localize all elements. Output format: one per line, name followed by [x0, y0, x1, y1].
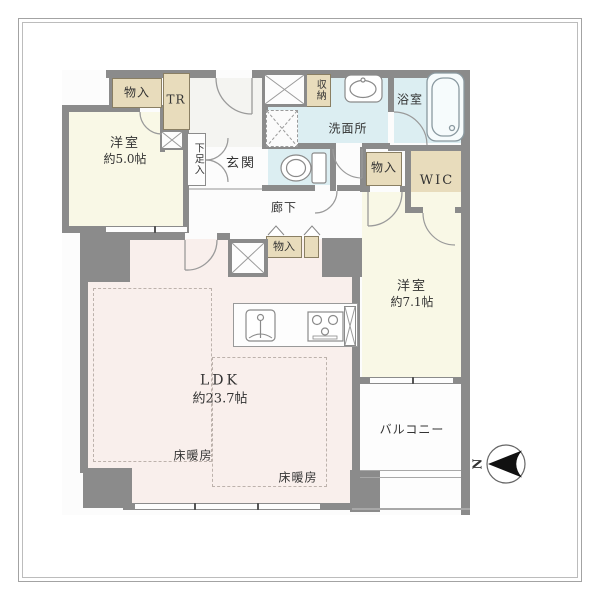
front-door-arc	[216, 78, 252, 114]
room-size: 約23.7帖	[193, 391, 248, 406]
closet-door-arc	[140, 112, 162, 134]
window-mullion-ticks	[155, 226, 413, 510]
label-floor-heating-1: 床暖房	[173, 449, 212, 464]
closet-chevron-marks	[268, 226, 320, 235]
label-genkan: 玄関	[226, 156, 256, 172]
room-label-yoshitsu5: 洋室 約5.0帖	[103, 136, 146, 169]
senmenjo-door-arc	[333, 149, 362, 178]
wic-door-arc	[423, 213, 455, 245]
floorplan-canvas: 洋室 約5.0帖 物入 TR 下足入 玄関 収納 洗面所 浴室 物入 WIC 廊…	[0, 0, 600, 600]
label-monoire-top-left: 物入	[124, 86, 150, 101]
compass-north-label: N	[471, 459, 486, 470]
room-size: 約5.0帖	[103, 152, 146, 166]
room-size: 約7.1帖	[390, 295, 433, 309]
label-senmenjo: 洗面所	[328, 122, 367, 137]
symbols-overlay	[0, 0, 600, 600]
bathtub-icon	[427, 73, 464, 141]
label-wic: WIC	[420, 173, 454, 189]
label-floor-heating-2: 床暖房	[278, 471, 317, 486]
washbasin-icon	[345, 75, 382, 102]
label-monoire-right: 物入	[371, 161, 397, 176]
toilet-door-arc	[315, 191, 337, 213]
room-name: LDK	[200, 373, 240, 389]
yoshitsu7-door-arc	[368, 192, 402, 226]
ldk-door-arc	[185, 240, 217, 270]
label-rouka: 廊下	[271, 201, 297, 216]
label-shunou: 収納	[313, 79, 326, 101]
room-label-yoshitsu7: 洋室 約7.1帖	[390, 279, 433, 312]
compass-icon	[487, 445, 525, 483]
label-monoire-corridor: 物入	[273, 240, 295, 254]
toilet-icon	[281, 153, 326, 183]
kitchen-sink-icon	[246, 310, 275, 341]
shoe-cabinet-doors-arc	[206, 138, 228, 182]
label-trunk-room: TR	[166, 93, 185, 108]
label-yokushitsu: 浴室	[397, 93, 423, 108]
label-gesokuire: 下足入	[191, 143, 204, 176]
label-balcony: バルコニー	[380, 423, 445, 438]
stove-icon	[308, 312, 343, 341]
bathroom-door-arc	[394, 112, 427, 145]
room-name: 洋室	[397, 279, 427, 294]
room-name: 洋室	[110, 136, 140, 151]
room-label-ldk: LDK 約23.7帖	[193, 373, 248, 408]
